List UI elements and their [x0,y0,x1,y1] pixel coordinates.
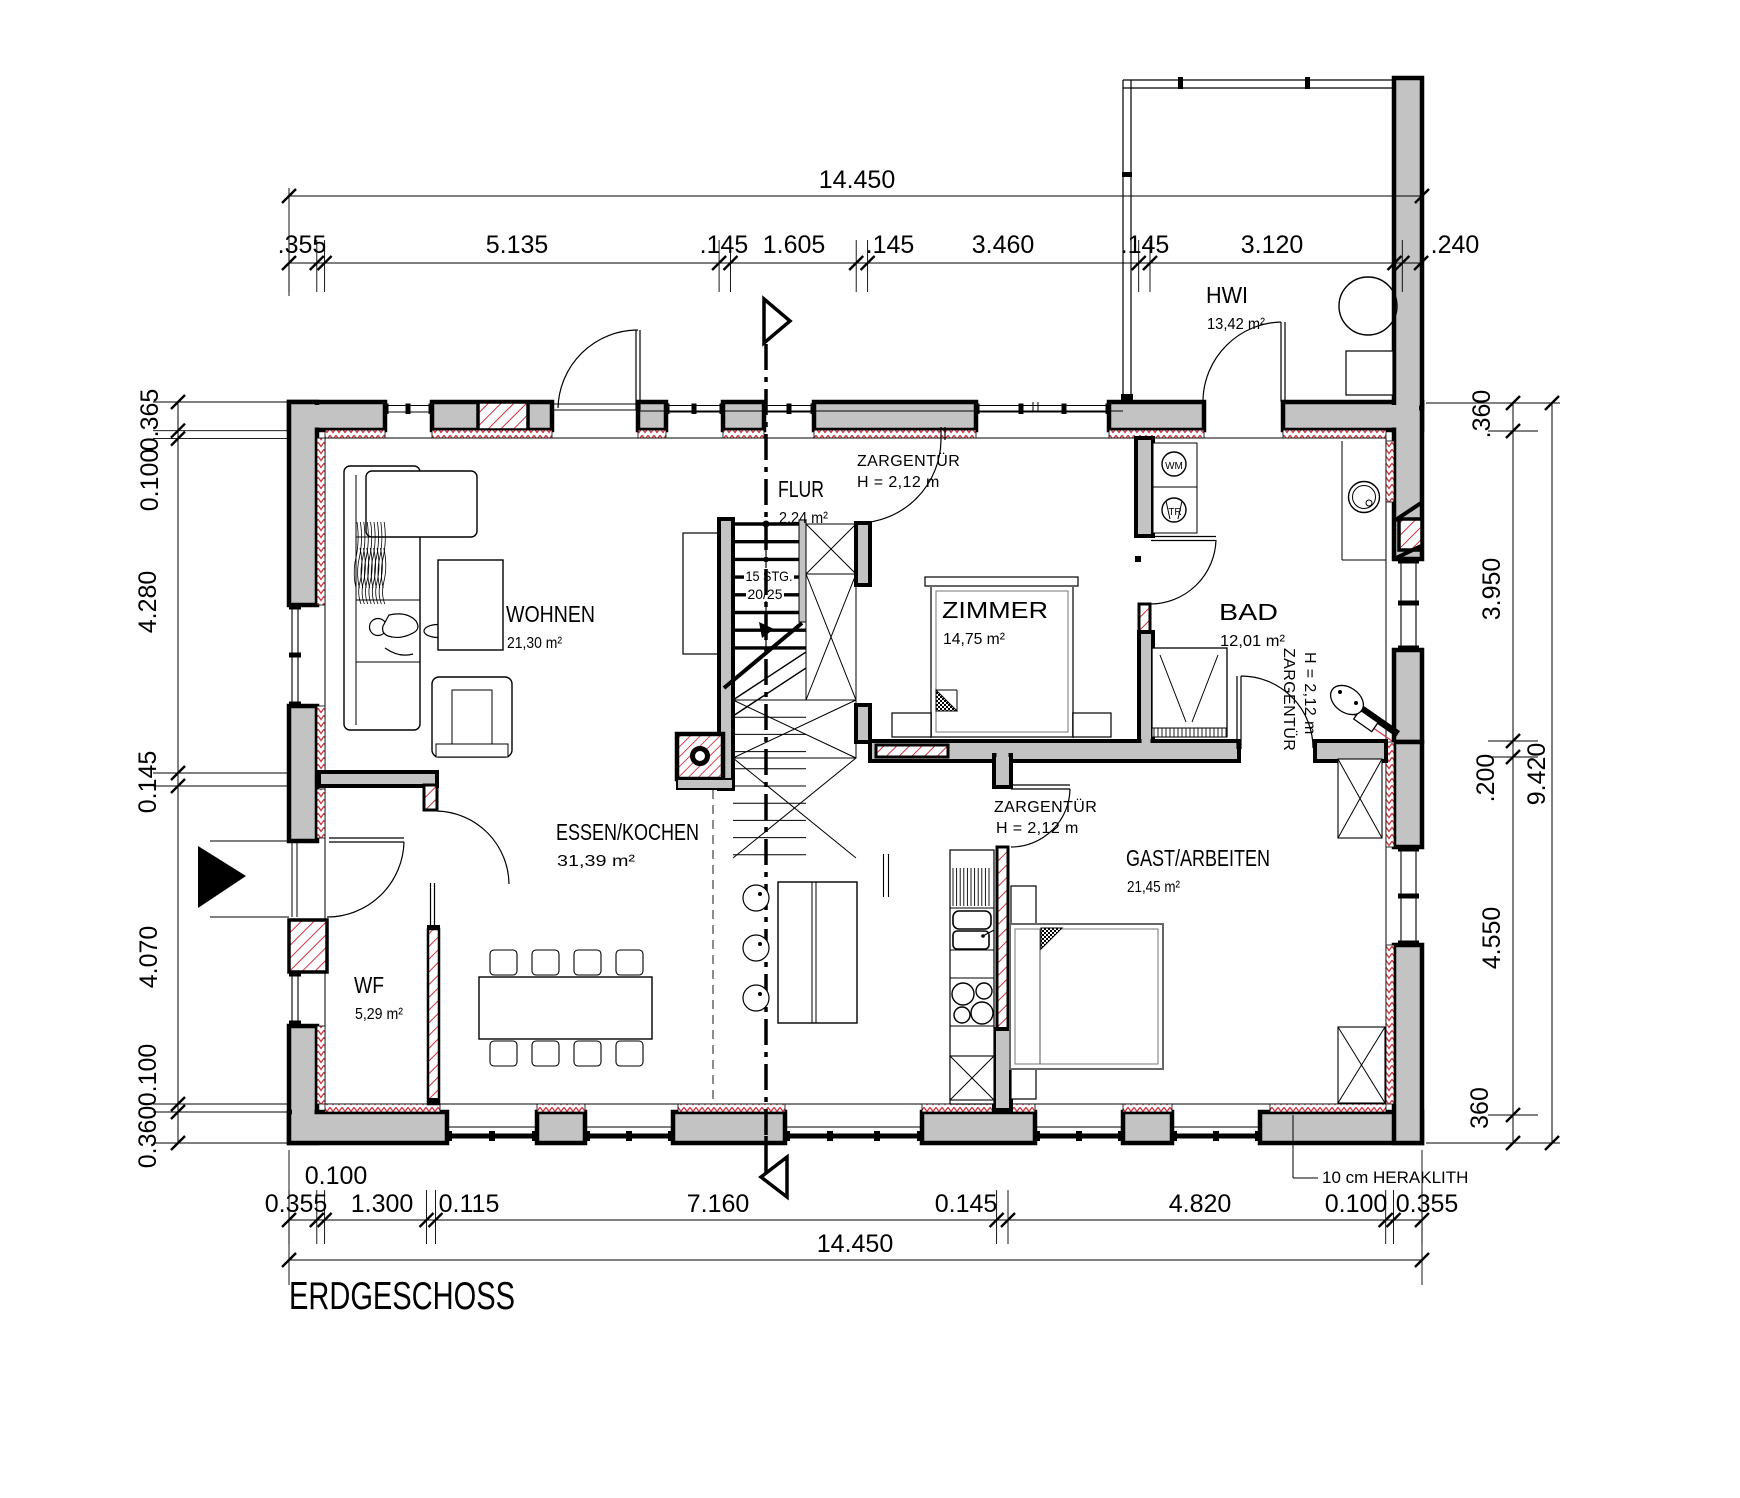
svg-text:5.135: 5.135 [486,231,549,259]
svg-text:TR: TR [1168,507,1181,518]
svg-text:H = 2,12 m: H = 2,12 m [857,474,940,491]
svg-text:14.450: 14.450 [817,1230,893,1258]
svg-text:0.145: 0.145 [935,1190,998,1218]
svg-text:4.820: 4.820 [1169,1190,1232,1218]
svg-text:5,29 m²: 5,29 m² [355,1006,404,1023]
svg-text:3.120: 3.120 [1241,231,1304,259]
svg-text:0.100: 0.100 [134,1044,162,1107]
svg-text:.240: .240 [1431,231,1480,259]
svg-text:12,01 m²: 12,01 m² [1220,633,1286,650]
svg-text:31,39 m²: 31,39 m² [557,853,636,870]
svg-text:14,75 m²: 14,75 m² [943,631,1006,648]
svg-text:FLUR: FLUR [778,476,824,502]
svg-text:15 STG.: 15 STG. [746,568,793,584]
svg-text:2,24 m²: 2,24 m² [779,510,829,527]
svg-text:.360: .360 [1468,390,1496,439]
svg-text:0.365: 0.365 [136,389,164,452]
svg-text:WF: WF [354,972,384,998]
svg-text:10 cm HERAKLITH: 10 cm HERAKLITH [1322,1168,1468,1187]
svg-text:HWI: HWI [1206,282,1248,308]
svg-text:0.100: 0.100 [136,449,164,512]
svg-text:3.950: 3.950 [1478,558,1506,621]
svg-text:21,30 m²: 21,30 m² [507,635,563,652]
svg-text:ZIMMER: ZIMMER [942,597,1048,623]
svg-text:360: 360 [1466,1087,1494,1129]
svg-text:H = 2,12 m: H = 2,12 m [996,820,1079,837]
svg-text:0.145: 0.145 [134,751,162,814]
svg-text:0.355: 0.355 [265,1190,328,1218]
svg-text:0.355: 0.355 [1396,1190,1459,1218]
svg-text:WOHNEN: WOHNEN [506,601,595,627]
svg-text:14.450: 14.450 [819,166,895,194]
svg-text:0.360: 0.360 [134,1106,162,1169]
svg-text:13,42 m²: 13,42 m² [1207,316,1266,333]
svg-text:4.550: 4.550 [1478,907,1506,970]
svg-text:ZARGENTÜR: ZARGENTÜR [994,798,1097,816]
svg-text:3.460: 3.460 [972,231,1035,259]
svg-text:BAD: BAD [1219,599,1278,625]
svg-text:9.420: 9.420 [1523,743,1551,806]
svg-text:4.070: 4.070 [135,926,163,989]
svg-text:0.100: 0.100 [305,1162,368,1190]
svg-text:.145: .145 [866,231,915,259]
svg-text:1.300: 1.300 [351,1190,414,1218]
svg-text:0.100: 0.100 [1325,1190,1388,1218]
svg-text:0.115: 0.115 [439,1190,500,1218]
svg-text:7.160: 7.160 [687,1190,750,1218]
svg-text:21,45 m²: 21,45 m² [1127,879,1181,896]
svg-text:.355: .355 [278,231,327,259]
svg-text:GAST/ARBEITEN: GAST/ARBEITEN [1126,845,1270,871]
svg-text:ESSEN/KOCHEN: ESSEN/KOCHEN [556,819,699,845]
svg-text:1.605: 1.605 [763,231,826,259]
svg-text:WM: WM [1165,461,1183,472]
svg-text:H = 2,12 m: H = 2,12 m [1301,652,1318,735]
svg-text:.145: .145 [700,231,749,259]
svg-text:.145: .145 [1121,231,1170,259]
svg-text:ERDGESCHOSS: ERDGESCHOSS [289,1275,515,1318]
svg-text:ZARGENTÜR: ZARGENTÜR [857,452,960,470]
svg-text:4.280: 4.280 [134,571,162,634]
svg-text:ZARGENTÜR: ZARGENTÜR [1280,648,1298,751]
svg-text:.200: .200 [1472,754,1500,803]
